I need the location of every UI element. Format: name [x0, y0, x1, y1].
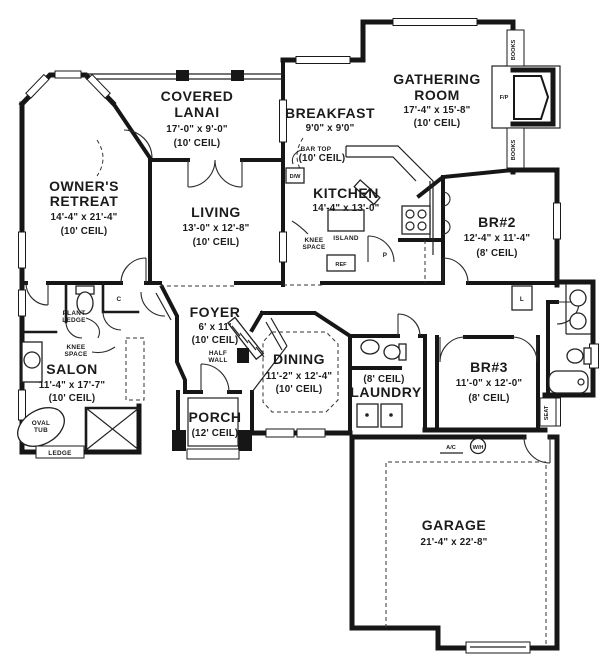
porch-step — [187, 449, 239, 459]
floor-plan-svg: COVERED LANAI 17'-0" x 9'-0" (10' CEIL) … — [0, 0, 605, 664]
annotation-arrows — [86, 150, 308, 353]
room-ceil-living: (10' CEIL) — [193, 237, 240, 248]
window — [393, 19, 477, 26]
room-label-br2: BR#2 — [478, 214, 516, 230]
oval-tub-label: TUB — [34, 427, 48, 434]
room-dims-dining: 11'-2" x 12'-4" — [266, 371, 333, 382]
room-label-salon: SALON — [46, 361, 98, 377]
room-label-dining: DINING — [273, 351, 325, 367]
ledge-label: LEDGE — [48, 450, 72, 457]
porch-post — [172, 430, 186, 451]
toilet-icon — [567, 349, 583, 363]
room-dims-lanai: 17'-0" x 9'-0" — [166, 124, 227, 135]
room-label-br3: BR#3 — [470, 359, 508, 375]
firebox — [514, 76, 548, 119]
room-dims-foyer: 6' x 11' — [199, 322, 232, 333]
room-dims-kitchen: 14'-4" x 13'-0" — [312, 203, 379, 214]
room-ceil-porch: (12' CEIL) — [192, 428, 239, 439]
window — [55, 71, 81, 78]
sink-icon — [570, 290, 586, 306]
knee-space-label: SPACE — [302, 244, 325, 251]
washer-knob — [365, 413, 369, 417]
room-label-owners: RETREAT — [50, 193, 119, 209]
room-ceil-br2: (8' CEIL) — [476, 248, 517, 259]
room-ceil-breakfast: (10' CEIL) — [299, 153, 346, 164]
window — [266, 429, 294, 437]
room-label-porch: PORCH — [188, 409, 241, 425]
ac-label: A/C — [446, 445, 456, 451]
linen-label: L — [520, 296, 524, 303]
books-label: BOOKS — [511, 139, 517, 160]
kitchen-pass-through — [280, 232, 287, 262]
oval-tub-label: OVAL — [32, 420, 50, 427]
room-dims-garage: 21'-4" x 22'-8" — [420, 537, 487, 548]
room-dims-gathering: 17'-4" x 15'-8" — [403, 105, 470, 116]
half-wall-post — [237, 348, 249, 363]
floor-plan-page: COVERED LANAI 17'-0" x 9'-0" (10' CEIL) … — [0, 0, 605, 664]
fireplace-label: F/P — [500, 95, 509, 101]
window — [87, 75, 110, 99]
window — [19, 390, 26, 420]
toilet-icon — [384, 345, 400, 359]
tub-icon — [549, 371, 588, 393]
stove-icon — [402, 206, 430, 234]
room-label-lanai: LANAI — [174, 104, 219, 120]
sink-icon — [361, 340, 379, 354]
plant-ledge-label: PLANT — [63, 310, 86, 317]
half-wall-label: WALL — [208, 357, 227, 364]
room-label-laundry: LAUNDRY — [350, 384, 422, 400]
sink-icon — [24, 352, 40, 368]
room-ceil-gathering: (10' CEIL) — [414, 118, 461, 129]
room-ceil-foyer: (10' CEIL) — [192, 335, 239, 346]
room-dims-br2: 12'-4" x 11'-4" — [464, 233, 531, 244]
island-label: ISLAND — [333, 235, 359, 242]
room-dims-owners: 14'-4" x 21'-4" — [50, 212, 117, 223]
dishwasher-label: D/W — [290, 174, 302, 180]
room-label-living: LIVING — [191, 204, 241, 220]
room-dims-salon: 11'-4" x 17'-7" — [39, 380, 106, 391]
room-dims-breakfast: 9'0" x 9'0" — [306, 123, 355, 134]
pantry-label: P — [383, 252, 388, 259]
sink-icon — [570, 313, 586, 329]
water-heater-label: W/H — [473, 445, 484, 451]
room-ceil-br3: (8' CEIL) — [468, 393, 509, 404]
porch-post — [238, 430, 252, 451]
fridge-label: REF — [335, 262, 347, 268]
knee-space-label: KNEE — [305, 237, 324, 244]
dryer-knob — [389, 413, 393, 417]
seat-label: SEAT — [544, 405, 550, 420]
room-label-garage: GARAGE — [422, 517, 486, 533]
plant-ledge-label: LEDGE — [62, 317, 86, 324]
window — [554, 203, 561, 239]
lanai-post — [176, 70, 189, 81]
window — [19, 290, 26, 316]
window — [297, 429, 325, 437]
room-label-gathering: ROOM — [414, 87, 460, 103]
room-ceil-salon: (10' CEIL) — [49, 393, 96, 404]
room-label-kitchen: KITCHEN — [313, 185, 379, 201]
window — [296, 57, 350, 64]
room-dims-br3: 11'-0" x 12'-0" — [456, 378, 523, 389]
toilet-tank — [584, 348, 591, 364]
room-label-breakfast: BREAKFAST — [285, 105, 375, 121]
room-label-owners: OWNER'S — [49, 178, 119, 194]
room-ceil-owners: (10' CEIL) — [61, 226, 108, 237]
window — [19, 232, 26, 268]
shower-icon — [86, 408, 139, 450]
knee-space-label: KNEE — [67, 344, 86, 351]
room-ceil-dining: (10' CEIL) — [276, 384, 323, 395]
books-label: BOOKS — [511, 39, 517, 60]
bar-top-label: BAR TOP — [301, 146, 332, 153]
room-dims-living: 13'-0" x 12'-8" — [182, 223, 249, 234]
room-label-lanai: COVERED — [161, 88, 234, 104]
room-ceil-lanai: (10' CEIL) — [174, 138, 221, 149]
lanai-post — [231, 70, 244, 81]
wardrobe-dashed — [126, 338, 144, 400]
room-label-gathering: GATHERING — [393, 71, 480, 87]
knee-space-label: SPACE — [64, 351, 87, 358]
room-label-foyer: FOYER — [190, 304, 241, 320]
half-wall-label: HALF — [209, 350, 227, 357]
window — [26, 75, 49, 99]
closet-label: C — [117, 296, 122, 303]
